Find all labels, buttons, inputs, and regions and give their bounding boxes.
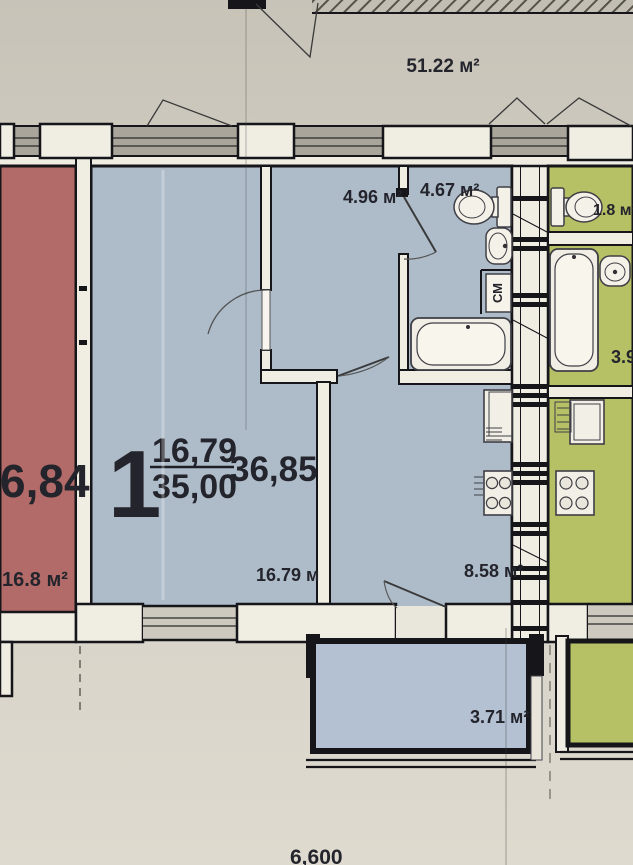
bottom-dimension-label: 6,600	[290, 846, 343, 865]
balcony-area-label: 3.71 м²	[470, 707, 529, 727]
stove-icon-right	[556, 471, 594, 515]
apartment-main-interior	[91, 166, 512, 608]
wc-right-area-label: 1.8 м²	[593, 202, 633, 219]
bottom-window	[143, 606, 237, 640]
bathtub-icon-right	[550, 249, 598, 371]
terrace-area-label: 51.22 м²	[406, 56, 479, 77]
balcony-right	[556, 636, 633, 759]
balcony-main	[306, 634, 544, 767]
bottom-window-right	[588, 604, 633, 640]
bathroom-area-label: 4.67 м²	[420, 180, 479, 200]
fridge-icon	[484, 390, 512, 442]
neighbor-left-area: 16.8 м²	[2, 569, 68, 591]
kitchen-area-label: 8.58 м²	[464, 561, 523, 581]
balcony-door-opening	[396, 606, 446, 640]
apartment-overall-area: 36,85	[230, 450, 318, 489]
bathroom-right-area-label: 3.9	[611, 347, 633, 367]
party-wall-left	[76, 154, 91, 622]
floor-plan-photo: 51.22 м²	[0, 0, 633, 865]
sink-icon	[486, 228, 512, 264]
washing-machine: СМ	[481, 270, 512, 314]
floor-plan: 51.22 м²	[0, 0, 633, 865]
neighbor-left-number: 6,84	[0, 455, 90, 507]
wall-stub-left	[0, 642, 12, 696]
washing-machine-label: СМ	[490, 283, 505, 303]
apartment-total-area: 35,00	[152, 468, 237, 506]
sink-icon-right	[600, 256, 630, 286]
hallway-area-label: 4.96 м²	[343, 187, 402, 207]
room-neighbor-left	[0, 166, 76, 618]
living-room-area-label: 16.79 м	[256, 565, 319, 585]
apartment-living-area: 16,79	[152, 432, 237, 470]
bathtub-icon	[411, 318, 511, 370]
